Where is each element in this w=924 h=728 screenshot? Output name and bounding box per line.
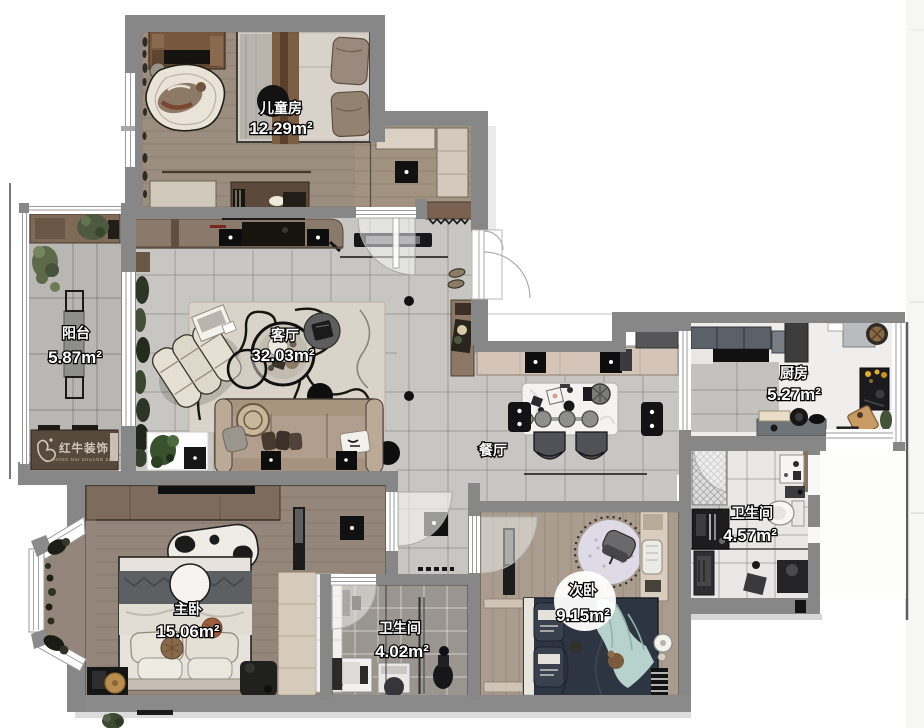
svg-text:卫生间: 卫生间 — [379, 620, 421, 636]
svg-text:阳台: 阳台 — [62, 325, 90, 341]
svg-text:餐厅: 餐厅 — [478, 442, 507, 458]
svg-text:12.29m²: 12.29m² — [249, 119, 313, 138]
svg-text:卫生间: 卫生间 — [731, 505, 773, 521]
svg-text:红牛装饰: 红牛装饰 — [59, 441, 109, 455]
svg-text:次卧: 次卧 — [569, 582, 597, 598]
svg-text:4.02m²: 4.02m² — [375, 642, 429, 661]
svg-text:HONG NIU ZHUANG SHI: HONG NIU ZHUANG SHI — [53, 457, 114, 462]
svg-text:儿童房: 儿童房 — [259, 100, 302, 116]
svg-text:客厅: 客厅 — [270, 327, 299, 343]
svg-text:5.87m²: 5.87m² — [48, 348, 102, 367]
svg-text:15.06m²: 15.06m² — [156, 622, 220, 641]
svg-text:5.27m²: 5.27m² — [767, 385, 821, 404]
svg-text:4.57m²: 4.57m² — [723, 526, 777, 545]
svg-text:9.15m²: 9.15m² — [556, 606, 610, 625]
svg-text:32.03m²: 32.03m² — [251, 346, 315, 365]
svg-text:主卧: 主卧 — [174, 601, 202, 617]
svg-text:厨房: 厨房 — [780, 365, 808, 381]
